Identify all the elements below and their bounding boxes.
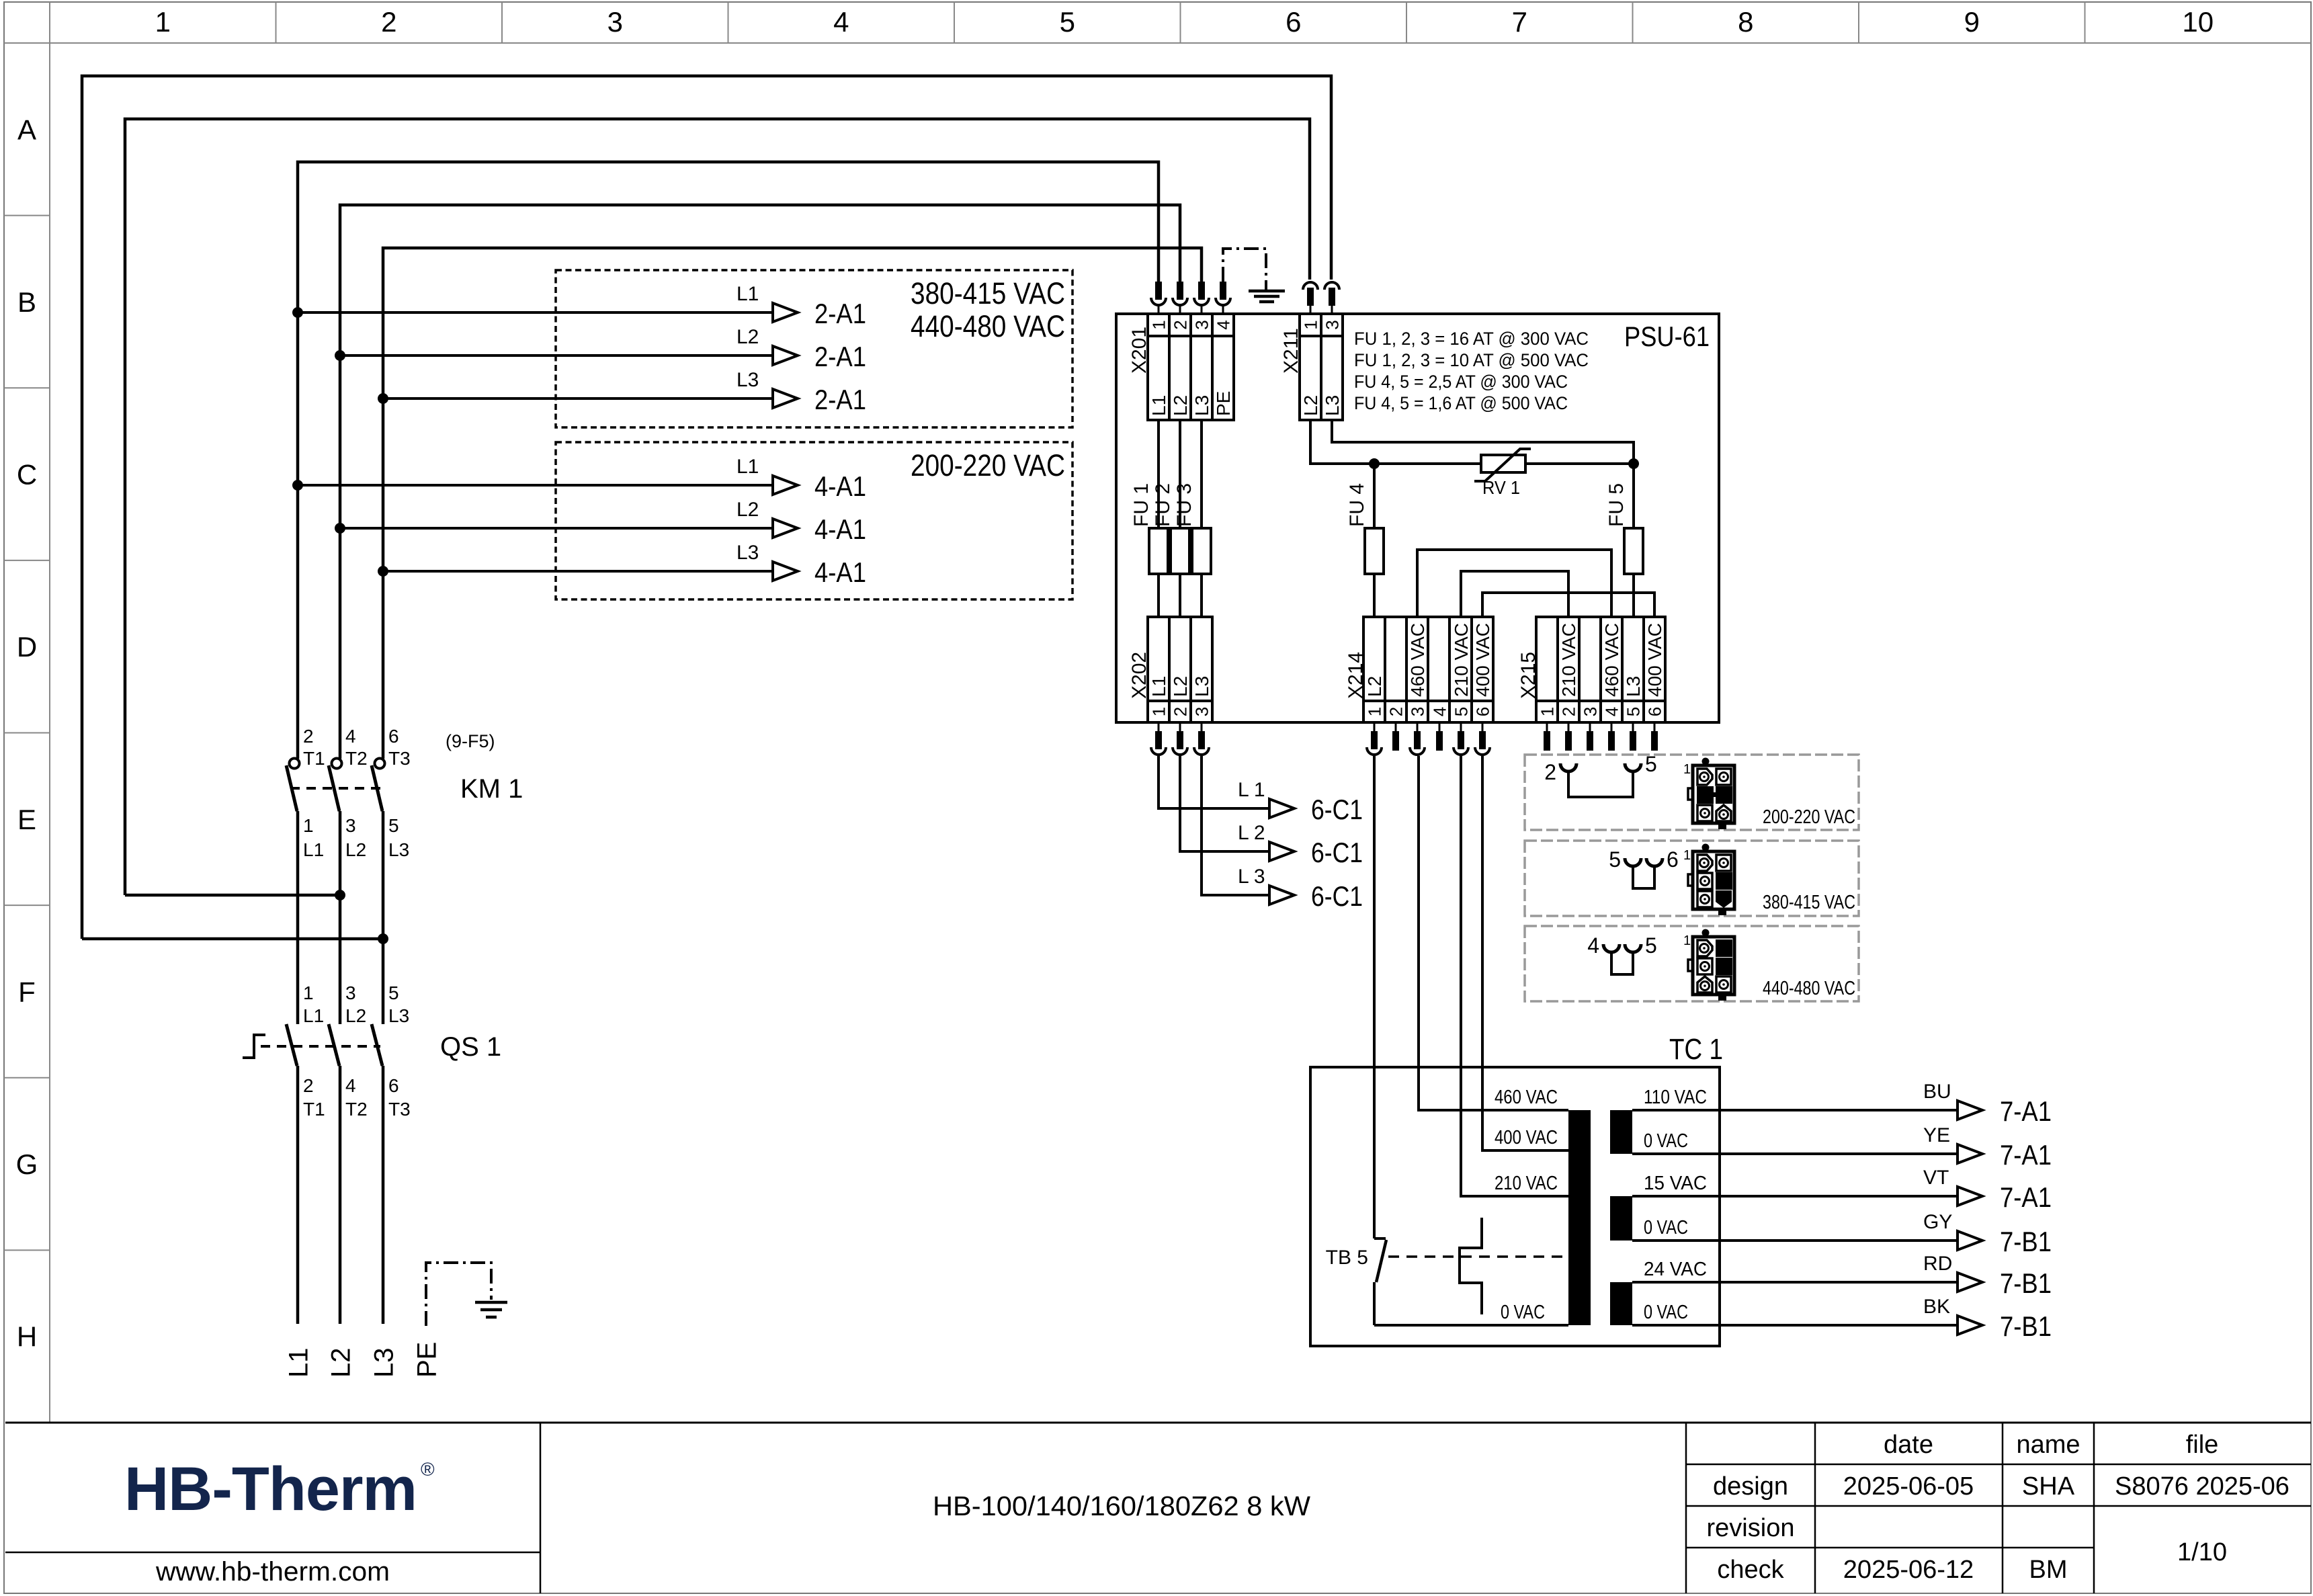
svg-text:1: 1 [155,6,171,38]
svg-text:4-A1: 4-A1 [814,470,866,502]
svg-text:0 VAC: 0 VAC [1644,1302,1688,1323]
svg-text:B: B [17,286,36,318]
svg-text:1: 1 [1148,707,1169,716]
svg-text:L2: L2 [737,499,759,521]
svg-text:1: 1 [303,815,314,836]
svg-text:460 VAC: 460 VAC [1495,1087,1558,1108]
svg-text:6: 6 [1667,847,1679,872]
svg-text:QS 1: QS 1 [440,1032,501,1062]
svg-text:FU 4, 5 = 1,6 AT @ 500 VAC: FU 4, 5 = 1,6 AT @ 500 VAC [1354,393,1568,413]
svg-text:6-C1: 6-C1 [1311,880,1363,912]
svg-text:6-C1: 6-C1 [1311,794,1363,825]
svg-text:4: 4 [1587,933,1599,958]
svg-text:1: 1 [303,982,314,1003]
svg-text:15 VAC: 15 VAC [1644,1173,1707,1194]
svg-text:FU 2: FU 2 [1152,483,1174,527]
svg-text:24 VAC: 24 VAC [1644,1259,1707,1280]
svg-text:X202: X202 [1128,652,1150,699]
svg-text:date: date [1884,1431,1933,1459]
svg-text:7-A1: 7-A1 [2000,1095,2052,1127]
svg-text:4: 4 [1213,320,1233,329]
svg-text:(9-F5): (9-F5) [446,731,495,751]
svg-text:1/10: 1/10 [2177,1538,2227,1566]
svg-text:5: 5 [388,815,399,836]
svg-text:2: 2 [381,6,396,38]
svg-text:T2: T2 [345,748,368,769]
svg-text:1: 1 [1148,320,1169,329]
svg-text:L1: L1 [1148,676,1169,697]
svg-text:G: G [16,1148,38,1180]
svg-text:X201: X201 [1128,327,1150,374]
svg-text:5: 5 [1060,6,1075,38]
svg-text:L3: L3 [388,839,409,860]
svg-text:L2: L2 [1170,676,1191,697]
svg-text:3: 3 [345,982,356,1003]
svg-text:2: 2 [1170,320,1190,329]
svg-text:L2: L2 [345,1005,366,1026]
svg-text:4-A1: 4-A1 [814,556,866,588]
svg-text:L3: L3 [1191,395,1212,416]
svg-text:1: 1 [1300,320,1320,329]
svg-text:5: 5 [1609,847,1621,872]
svg-text:2: 2 [1544,760,1556,784]
svg-text:name: name [2016,1431,2080,1459]
svg-text:T3: T3 [388,1099,411,1120]
svg-text:T1: T1 [303,748,325,769]
svg-text:2-A1: 2-A1 [814,384,866,415]
svg-text:BM: BM [2029,1556,2068,1584]
svg-text:380-415 VAC: 380-415 VAC [911,276,1065,310]
svg-text:L 2: L 2 [1238,822,1265,844]
svg-text:FU 4, 5 = 2,5 AT @ 300 VAC: FU 4, 5 = 2,5 AT @ 300 VAC [1354,372,1568,392]
svg-text:GY: GY [1923,1211,1952,1233]
svg-text:400 VAC: 400 VAC [1495,1127,1558,1148]
svg-text:RV 1: RV 1 [1482,477,1520,498]
svg-text:E: E [17,804,36,835]
svg-text:F: F [18,976,36,1007]
svg-text:10: 10 [2182,6,2214,38]
svg-text:L2: L2 [345,839,366,860]
svg-text:file: file [2186,1431,2219,1459]
svg-text:0 VAC: 0 VAC [1644,1130,1688,1152]
svg-text:L1: L1 [737,456,759,478]
svg-text:FU 1, 2, 3 = 10 AT @ 500 VAC: FU 1, 2, 3 = 10 AT @ 500 VAC [1354,350,1589,370]
svg-text:2: 2 [1170,707,1190,716]
svg-text:5: 5 [388,982,399,1003]
svg-text:3: 3 [1191,320,1212,329]
svg-text:L1: L1 [303,1005,324,1026]
svg-text:check: check [1717,1556,1784,1584]
svg-text:PSU-61: PSU-61 [1624,321,1710,352]
svg-text:design: design [1713,1472,1788,1501]
svg-text:L2: L2 [326,1348,355,1378]
svg-text:380-415 VAC: 380-415 VAC [1763,892,1855,913]
svg-text:4-A1: 4-A1 [814,513,866,545]
svg-text:5: 5 [1645,933,1657,958]
svg-text:revision: revision [1707,1514,1795,1542]
svg-text:1: 1 [1683,933,1691,948]
svg-text:460 VAC: 460 VAC [1407,623,1428,697]
svg-text:X215: X215 [1517,652,1540,699]
svg-text:0 VAC: 0 VAC [1644,1217,1688,1238]
svg-text:3: 3 [1580,707,1600,716]
svg-text:L3: L3 [1322,395,1343,416]
svg-text:SHA: SHA [2022,1472,2075,1501]
svg-text:L 3: L 3 [1238,866,1265,888]
svg-text:T3: T3 [388,748,411,769]
svg-text:L1: L1 [284,1348,313,1378]
svg-text:400 VAC: 400 VAC [1472,623,1493,697]
svg-text:4: 4 [1429,707,1449,716]
svg-text:L1: L1 [737,283,759,305]
svg-text:L2: L2 [1300,395,1321,416]
svg-text:1: 1 [1364,707,1384,716]
svg-text:2: 2 [303,1075,314,1096]
svg-text:FU 5: FU 5 [1605,483,1628,527]
svg-text:6: 6 [388,726,399,747]
svg-text:L2: L2 [1364,676,1385,697]
svg-text:4: 4 [1601,707,1622,716]
svg-text:110 VAC: 110 VAC [1644,1087,1707,1108]
svg-text:D: D [17,631,37,663]
svg-text:2-A1: 2-A1 [814,298,866,329]
svg-text:3: 3 [607,6,623,38]
svg-text:L2: L2 [1170,395,1191,416]
svg-text:1: 1 [1683,762,1691,777]
svg-text:X214: X214 [1345,652,1367,699]
svg-text:T1: T1 [303,1099,325,1120]
svg-text:7: 7 [1512,6,1527,38]
svg-text:H: H [17,1321,37,1353]
svg-text:7-B1: 7-B1 [2000,1310,2052,1342]
svg-text:1: 1 [1537,707,1557,716]
svg-text:KM 1: KM 1 [460,774,523,804]
svg-text:5: 5 [1645,752,1657,776]
svg-text:1: 1 [1683,848,1691,863]
svg-text:3: 3 [345,815,356,836]
svg-text:210 VAC: 210 VAC [1495,1173,1558,1194]
svg-text:2025-06-05: 2025-06-05 [1843,1472,1974,1501]
svg-text:200-220 VAC: 200-220 VAC [1763,806,1855,828]
svg-text:4: 4 [833,6,849,38]
svg-text:PE: PE [1213,391,1234,416]
svg-text:RD: RD [1923,1253,1952,1275]
svg-text:6: 6 [1286,6,1301,38]
svg-text:FU 1, 2, 3 = 16 AT @ 300 VAC: FU 1, 2, 3 = 16 AT @ 300 VAC [1354,329,1589,349]
svg-text:400 VAC: 400 VAC [1644,623,1665,697]
svg-text:3: 3 [1322,320,1342,329]
svg-text:L3: L3 [369,1348,398,1378]
svg-text:440-480 VAC: 440-480 VAC [911,309,1065,343]
svg-text:2025-06-12: 2025-06-12 [1843,1556,1974,1584]
svg-text:7-B1: 7-B1 [2000,1267,2052,1299]
svg-text:HB-Therm: HB-Therm [124,1455,417,1523]
svg-text:HB-100/140/160/180Z62 8 kW: HB-100/140/160/180Z62 8 kW [933,1490,1310,1521]
svg-text:FU 3: FU 3 [1173,483,1195,527]
svg-text:L3: L3 [388,1005,409,1026]
svg-text:200-220 VAC: 200-220 VAC [911,448,1065,482]
svg-text:7-A1: 7-A1 [2000,1181,2052,1213]
svg-text:0 VAC: 0 VAC [1501,1302,1545,1323]
svg-text:2: 2 [1558,707,1579,716]
svg-text:BK: BK [1923,1296,1950,1318]
svg-text:L3: L3 [737,369,759,391]
svg-text:VT: VT [1923,1167,1949,1189]
svg-text:®: ® [421,1459,435,1480]
svg-text:www.hb-therm.com: www.hb-therm.com [155,1557,390,1587]
svg-text:L3: L3 [1623,676,1644,697]
svg-text:2-A1: 2-A1 [814,341,866,372]
svg-text:YE: YE [1923,1124,1950,1146]
svg-text:L3: L3 [737,542,759,564]
svg-text:BU: BU [1923,1081,1951,1103]
svg-text:TB 5: TB 5 [1326,1247,1368,1269]
svg-text:5: 5 [1451,707,1471,716]
svg-text:L2: L2 [737,326,759,348]
svg-text:2: 2 [303,726,314,747]
svg-text:3: 3 [1191,707,1212,716]
svg-text:8: 8 [1738,6,1753,38]
svg-text:A: A [17,114,36,145]
svg-text:L1: L1 [1148,395,1169,416]
svg-text:7-A1: 7-A1 [2000,1139,2052,1171]
svg-text:L 1: L 1 [1238,779,1265,801]
svg-text:TC 1: TC 1 [1669,1033,1723,1066]
svg-text:460 VAC: 460 VAC [1601,623,1622,697]
svg-text:6: 6 [388,1075,399,1096]
svg-text:4: 4 [345,726,356,747]
svg-text:7-B1: 7-B1 [2000,1226,2052,1257]
svg-text:FU 4: FU 4 [1346,483,1368,527]
svg-text:C: C [17,459,37,491]
svg-text:440-480 VAC: 440-480 VAC [1763,978,1855,999]
svg-text:3: 3 [1407,707,1427,716]
svg-text:6: 6 [1472,707,1492,716]
svg-text:4: 4 [345,1075,356,1096]
svg-text:X211: X211 [1280,328,1302,374]
svg-text:T2: T2 [345,1099,368,1120]
svg-text:2: 2 [1386,707,1406,716]
svg-text:L3: L3 [1191,676,1212,697]
svg-text:9: 9 [1964,6,1980,38]
svg-text:PE: PE [412,1342,441,1378]
svg-text:6: 6 [1644,707,1665,716]
svg-text:L1: L1 [303,839,324,860]
svg-text:210 VAC: 210 VAC [1558,623,1579,697]
svg-text:6-C1: 6-C1 [1311,837,1363,868]
svg-text:5: 5 [1623,707,1643,716]
svg-text:210 VAC: 210 VAC [1451,623,1472,697]
svg-text:FU 1: FU 1 [1130,483,1152,527]
svg-text:S8076 2025-06: S8076 2025-06 [2115,1472,2289,1501]
